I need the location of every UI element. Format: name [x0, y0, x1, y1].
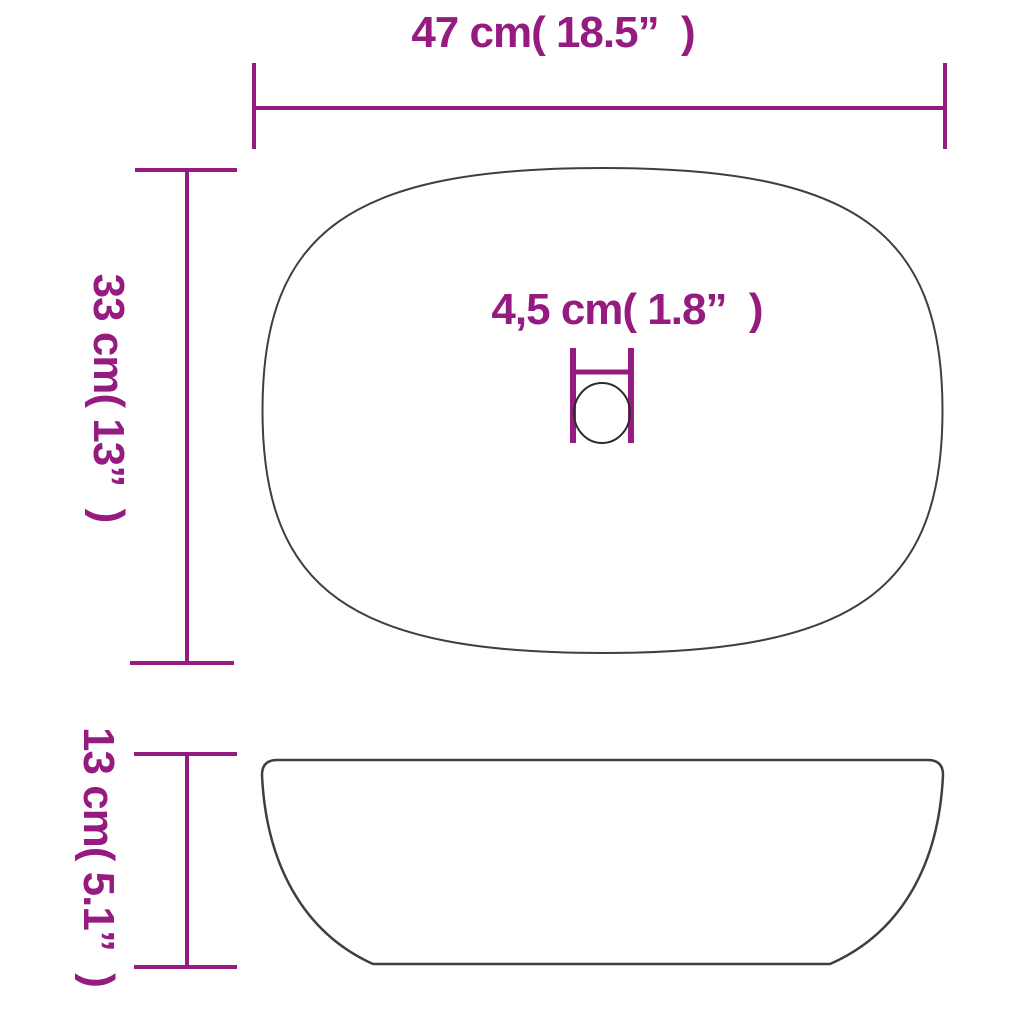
drain-dimension-label: 4,5 cm( 1.8” ) [491, 288, 762, 332]
width-dimension-label: 47 cm( 18.5” ) [411, 11, 694, 55]
height-dimension-lines [130, 170, 237, 663]
dimension-diagram: 47 cm( 18.5” ) 33 cm( 13” ) 4,5 cm( 1.8”… [0, 0, 1024, 1024]
depth-dimension-label: 13 cm( 5.1” ) [76, 727, 120, 987]
depth-dimension-lines [134, 754, 237, 967]
drain-hole-circle [574, 383, 630, 443]
height-dimension-label: 33 cm( 13” ) [86, 274, 130, 523]
basin-top-view-outline [263, 168, 943, 653]
basin-side-view-outline [262, 760, 943, 964]
width-dimension-lines [254, 63, 945, 149]
diagram-canvas [0, 0, 1024, 1024]
